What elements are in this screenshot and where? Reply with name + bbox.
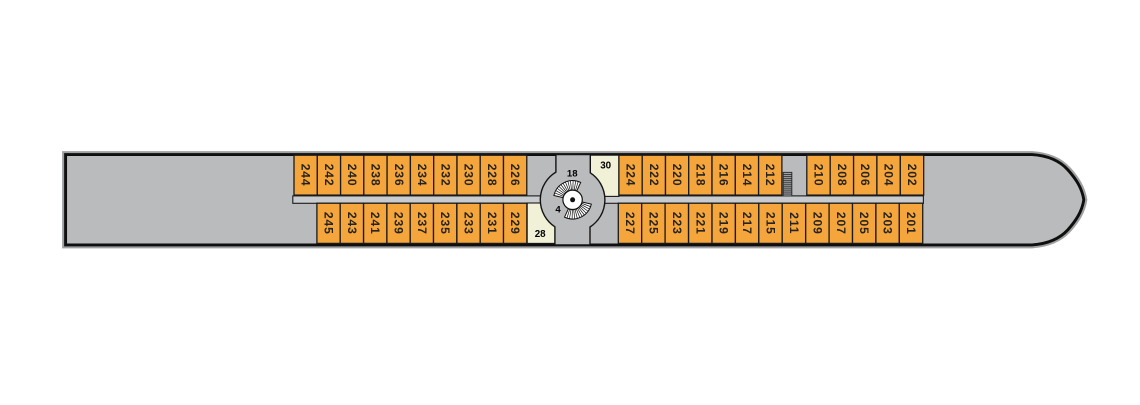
svg-text:4: 4 <box>555 205 561 216</box>
svg-text:18: 18 <box>567 169 578 180</box>
svg-text:28: 28 <box>535 229 546 240</box>
svg-text:210: 210 <box>812 164 826 187</box>
svg-text:234: 234 <box>415 164 429 187</box>
svg-text:215: 215 <box>764 212 778 235</box>
svg-text:228: 228 <box>485 164 499 187</box>
svg-text:244: 244 <box>299 164 313 187</box>
svg-text:238: 238 <box>369 164 383 187</box>
svg-text:209: 209 <box>810 212 824 235</box>
svg-text:201: 201 <box>904 212 918 235</box>
svg-text:220: 220 <box>670 164 684 187</box>
svg-text:226: 226 <box>508 164 522 187</box>
svg-text:214: 214 <box>740 164 754 187</box>
svg-text:207: 207 <box>834 212 848 235</box>
svg-text:202: 202 <box>905 164 919 187</box>
svg-text:212: 212 <box>763 164 777 187</box>
svg-text:224: 224 <box>624 164 638 187</box>
svg-text:218: 218 <box>693 164 707 187</box>
svg-text:235: 235 <box>438 212 452 235</box>
svg-text:221: 221 <box>693 212 707 235</box>
svg-text:241: 241 <box>368 212 382 235</box>
svg-text:219: 219 <box>717 212 731 235</box>
svg-text:243: 243 <box>345 212 359 235</box>
svg-text:240: 240 <box>345 164 359 187</box>
svg-text:245: 245 <box>322 212 336 235</box>
svg-text:237: 237 <box>415 212 429 235</box>
svg-text:203: 203 <box>881 212 895 235</box>
svg-text:233: 233 <box>462 212 476 235</box>
svg-text:230: 230 <box>462 164 476 187</box>
svg-text:208: 208 <box>835 164 849 187</box>
svg-text:211: 211 <box>787 212 801 234</box>
svg-text:222: 222 <box>647 164 661 187</box>
svg-text:205: 205 <box>857 212 871 235</box>
svg-text:227: 227 <box>623 212 637 235</box>
svg-text:229: 229 <box>508 212 522 235</box>
svg-text:242: 242 <box>322 164 336 187</box>
svg-text:223: 223 <box>670 212 684 235</box>
svg-text:232: 232 <box>438 164 452 187</box>
svg-text:225: 225 <box>646 212 660 235</box>
svg-text:30: 30 <box>600 160 611 171</box>
svg-text:206: 206 <box>858 164 872 187</box>
svg-text:216: 216 <box>717 164 731 187</box>
svg-text:217: 217 <box>740 212 754 235</box>
svg-text:236: 236 <box>392 164 406 187</box>
svg-text:231: 231 <box>485 212 499 235</box>
svg-text:239: 239 <box>392 212 406 235</box>
svg-text:204: 204 <box>882 164 896 187</box>
